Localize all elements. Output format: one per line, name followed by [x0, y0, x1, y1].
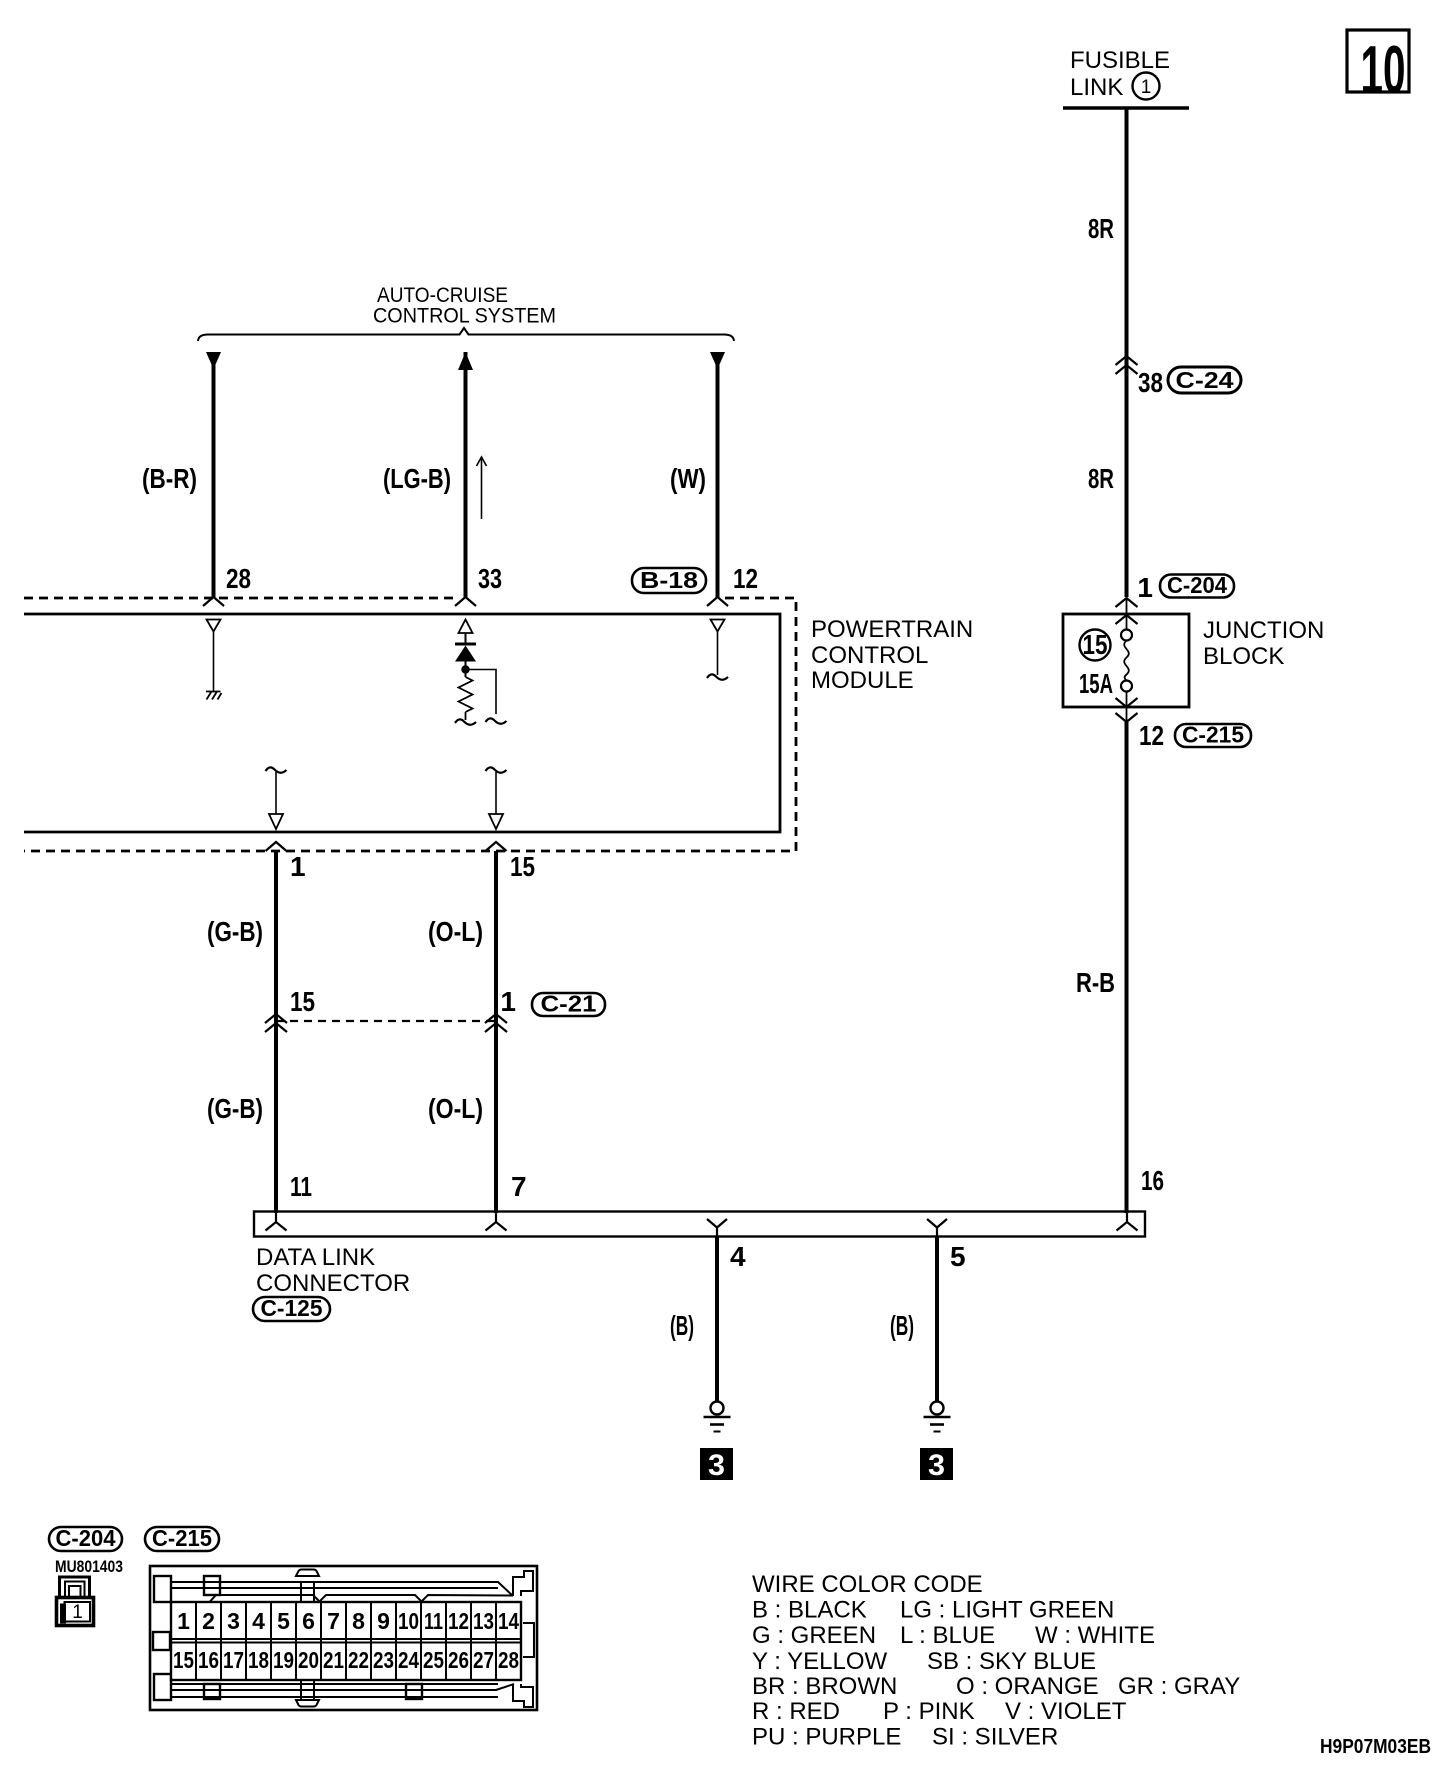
svg-text:1: 1 — [72, 1602, 83, 1623]
svg-text:L : BLUE: L : BLUE — [900, 1622, 995, 1649]
svg-text:23: 23 — [373, 1647, 394, 1673]
svg-text:(O-L): (O-L) — [428, 916, 483, 947]
svg-text:4: 4 — [252, 1608, 265, 1634]
svg-text:27: 27 — [473, 1647, 494, 1673]
svg-text:5: 5 — [277, 1608, 290, 1634]
svg-text:CONNECTOR: CONNECTOR — [256, 1270, 410, 1297]
svg-text:R-B: R-B — [1076, 967, 1115, 998]
svg-text:(LG-B): (LG-B) — [383, 463, 451, 494]
svg-text:10: 10 — [1361, 32, 1406, 108]
svg-text:22: 22 — [348, 1647, 369, 1673]
svg-text:WIRE COLOR CODE: WIRE COLOR CODE — [752, 1571, 983, 1598]
svg-text:(B): (B) — [670, 1310, 694, 1341]
svg-text:15: 15 — [173, 1647, 194, 1673]
svg-text:C-215: C-215 — [1182, 722, 1244, 748]
svg-text:C-24: C-24 — [1176, 367, 1234, 393]
svg-text:(B): (B) — [890, 1310, 914, 1341]
svg-text:3: 3 — [928, 1449, 945, 1482]
svg-text:21: 21 — [323, 1647, 344, 1673]
svg-text:9: 9 — [377, 1608, 390, 1634]
svg-text:12: 12 — [1139, 720, 1164, 751]
svg-text:28: 28 — [498, 1647, 519, 1673]
svg-text:15A: 15A — [1079, 668, 1113, 699]
svg-text:1: 1 — [177, 1608, 190, 1634]
svg-text:CONTROL: CONTROL — [811, 642, 928, 669]
svg-text:1: 1 — [1141, 77, 1152, 98]
svg-text:C-204: C-204 — [56, 1525, 116, 1551]
svg-text:R : RED: R : RED — [752, 1698, 840, 1725]
svg-text:CONTROL SYSTEM: CONTROL SYSTEM — [373, 305, 556, 328]
svg-text:10: 10 — [398, 1608, 419, 1634]
svg-text:3: 3 — [708, 1449, 725, 1482]
svg-text:LINK: LINK — [1070, 74, 1123, 101]
svg-text:B-18: B-18 — [640, 567, 698, 593]
svg-text:G : GREEN: G : GREEN — [752, 1622, 876, 1649]
svg-text:W : WHITE: W : WHITE — [1035, 1622, 1155, 1649]
svg-text:1: 1 — [1137, 572, 1153, 603]
svg-text:C-21: C-21 — [541, 991, 597, 1017]
svg-text:PU : PURPLE: PU : PURPLE — [752, 1724, 901, 1751]
svg-text:25: 25 — [423, 1647, 444, 1673]
svg-text:7: 7 — [327, 1608, 340, 1634]
svg-text:5: 5 — [950, 1241, 966, 1272]
svg-text:(W): (W) — [670, 463, 706, 494]
svg-text:12: 12 — [448, 1608, 469, 1634]
svg-text:JUNCTION: JUNCTION — [1203, 617, 1324, 644]
svg-text:H9P07M03EB: H9P07M03EB — [1320, 1736, 1431, 1758]
svg-text:14: 14 — [498, 1608, 519, 1634]
svg-text:B : BLACK: B : BLACK — [752, 1597, 867, 1624]
svg-text:GR : GRAY: GR : GRAY — [1118, 1673, 1240, 1700]
svg-text:(G-B): (G-B) — [207, 1093, 263, 1124]
svg-text:8R: 8R — [1088, 463, 1114, 494]
svg-text:LG : LIGHT GREEN: LG : LIGHT GREEN — [900, 1597, 1114, 1624]
svg-text:C-215: C-215 — [152, 1525, 212, 1551]
svg-text:V : VIOLET: V : VIOLET — [1005, 1698, 1127, 1725]
svg-text:(G-B): (G-B) — [207, 916, 263, 947]
svg-text:19: 19 — [273, 1647, 294, 1673]
svg-text:33: 33 — [478, 563, 502, 594]
svg-text:(O-L): (O-L) — [428, 1093, 483, 1124]
svg-text:6: 6 — [302, 1608, 315, 1634]
svg-text:38: 38 — [1138, 367, 1163, 398]
svg-text:13: 13 — [473, 1608, 494, 1634]
svg-text:C-204: C-204 — [1167, 572, 1227, 598]
svg-text:16: 16 — [1141, 1165, 1164, 1196]
svg-text:POWERTRAIN: POWERTRAIN — [811, 616, 973, 643]
svg-text:O : ORANGE: O : ORANGE — [956, 1673, 1099, 1700]
svg-text:FUSIBLE: FUSIBLE — [1070, 47, 1170, 74]
svg-text:DATA LINK: DATA LINK — [256, 1244, 375, 1271]
svg-text:28: 28 — [226, 563, 251, 594]
svg-text:1: 1 — [500, 986, 516, 1017]
svg-text:11: 11 — [290, 1171, 312, 1202]
svg-text:C-125: C-125 — [261, 1295, 323, 1321]
svg-text:1: 1 — [290, 851, 306, 882]
svg-text:P : PINK: P : PINK — [883, 1698, 975, 1725]
svg-text:(B-R): (B-R) — [142, 463, 197, 494]
svg-text:2: 2 — [202, 1608, 215, 1634]
svg-text:20: 20 — [298, 1647, 319, 1673]
svg-text:17: 17 — [223, 1647, 244, 1673]
svg-text:15: 15 — [510, 851, 535, 882]
svg-text:15: 15 — [290, 986, 315, 1017]
svg-text:8: 8 — [352, 1608, 365, 1634]
svg-text:4: 4 — [730, 1241, 746, 1272]
svg-text:16: 16 — [198, 1647, 219, 1673]
svg-text:3: 3 — [227, 1608, 240, 1634]
svg-text:8R: 8R — [1088, 213, 1114, 244]
svg-text:MODULE: MODULE — [811, 667, 914, 694]
svg-text:7: 7 — [511, 1171, 527, 1202]
svg-text:15: 15 — [1083, 629, 1108, 660]
svg-text:26: 26 — [448, 1647, 469, 1673]
svg-text:SI : SILVER: SI : SILVER — [932, 1724, 1058, 1751]
svg-text:BR : BROWN: BR : BROWN — [752, 1673, 897, 1700]
svg-text:12: 12 — [733, 563, 758, 594]
svg-text:SB : SKY BLUE: SB : SKY BLUE — [927, 1648, 1096, 1675]
svg-text:18: 18 — [248, 1647, 269, 1673]
svg-text:24: 24 — [398, 1647, 419, 1673]
svg-text:Y : YELLOW: Y : YELLOW — [752, 1648, 888, 1675]
svg-text:BLOCK: BLOCK — [1203, 643, 1284, 670]
svg-text:11: 11 — [424, 1608, 443, 1634]
svg-text:MU801403: MU801403 — [55, 1557, 123, 1576]
